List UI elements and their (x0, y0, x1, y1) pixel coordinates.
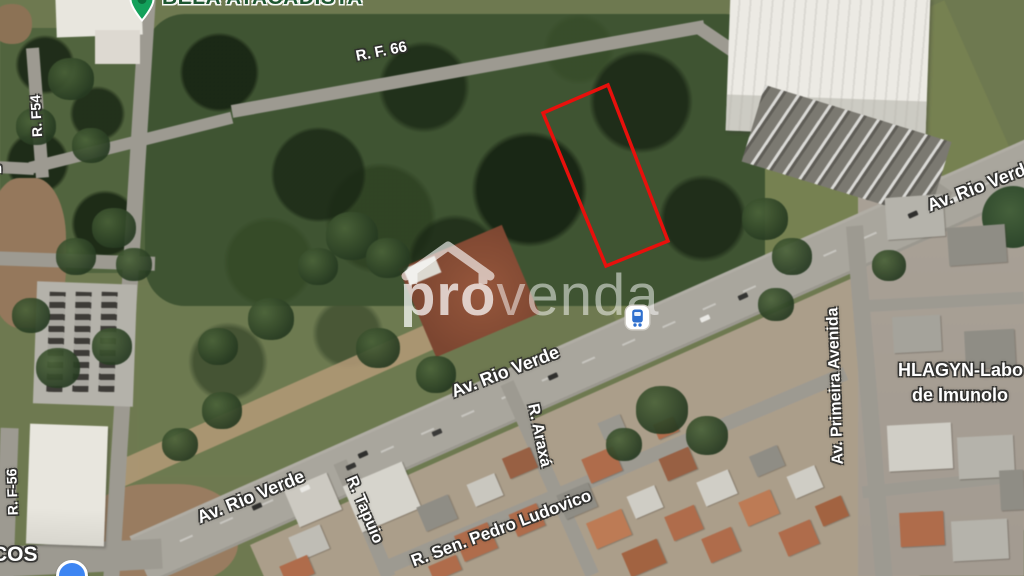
partial-label-bottom-left: COS (0, 543, 38, 567)
tree (72, 128, 110, 163)
dirt-area (0, 4, 32, 44)
house-roof (887, 422, 953, 471)
partial-poi-label-top: BELA ATACADISTA (162, 0, 582, 6)
tree (686, 416, 728, 455)
tree (872, 250, 906, 281)
house-roof (999, 469, 1024, 510)
tree (248, 298, 294, 340)
road-stub (0, 161, 34, 175)
tree (742, 198, 788, 240)
tree (56, 238, 96, 275)
tree (298, 248, 338, 285)
tree (36, 348, 80, 388)
house-roof (951, 519, 1009, 562)
tree (356, 328, 400, 368)
poi-label-hlagyn-line2: de Imunolo (912, 383, 1023, 408)
tree (366, 238, 410, 278)
satellite-map-canvas[interactable]: provenda R. F. 66 R. F54 Av. Rio Verde A… (0, 0, 1024, 576)
poi-label-hlagyn-line1: HLAGYN-Labo (898, 358, 1023, 383)
satellite-imagery (0, 0, 1024, 576)
poi-label-hlagyn: HLAGYN-Labo de Imunolo (898, 358, 1023, 408)
house-roof (947, 224, 1008, 266)
tree (202, 392, 242, 429)
tree (198, 328, 238, 365)
house-roof (899, 511, 945, 547)
tree (116, 248, 152, 281)
bus-station-icon[interactable] (624, 304, 651, 331)
tree (162, 428, 198, 461)
tree (48, 58, 94, 100)
tree (758, 288, 794, 321)
partial-label-left-edge: n (0, 160, 2, 177)
tree (92, 328, 132, 365)
building-roof (95, 30, 140, 64)
tree (92, 208, 136, 248)
tree (606, 428, 642, 461)
tree (12, 298, 50, 333)
house-roof (892, 315, 942, 353)
tree (772, 238, 812, 275)
map-pin-icon[interactable] (126, 0, 158, 23)
tree (636, 386, 688, 434)
white-warehouse (26, 424, 108, 547)
